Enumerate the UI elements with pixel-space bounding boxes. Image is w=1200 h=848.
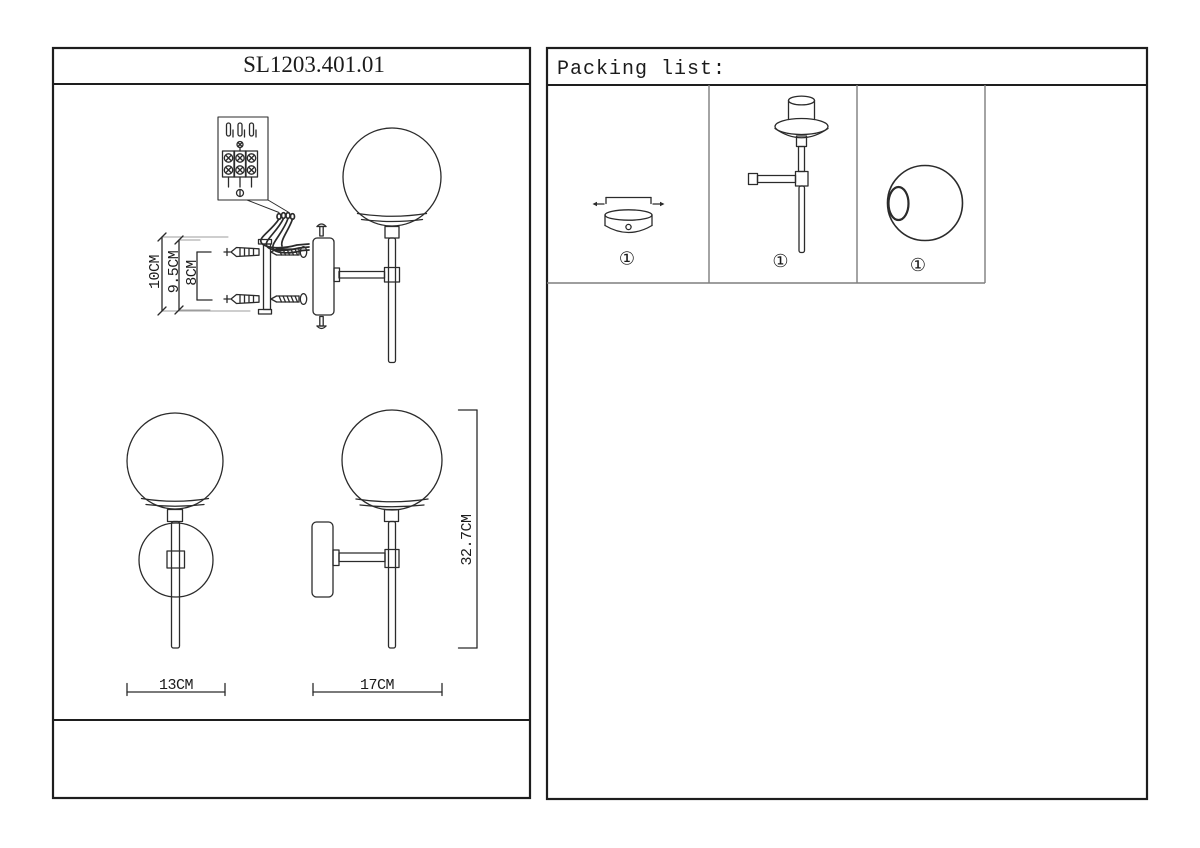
- glass-globe-drawing: [888, 166, 963, 241]
- assembled-lamp-side-top-drawing: [334, 128, 441, 363]
- dim-17cm-label: 17CM: [360, 677, 395, 694]
- dim-10cm-label: 10CM: [147, 255, 164, 290]
- packing-grid: [547, 85, 985, 283]
- right-panel-frame: [547, 48, 1147, 799]
- instruction-sheet: SL1203.401.01: [0, 0, 1200, 848]
- wall-plate-side-drawing: [313, 238, 334, 315]
- dim-13cm-label: 13CM: [159, 677, 194, 694]
- dim-8cm-label: 8CM: [184, 260, 201, 286]
- canopy-drawing: [593, 198, 665, 233]
- sheet-canvas: SL1203.401.01: [0, 0, 1200, 848]
- callout-lines: [247, 200, 289, 213]
- mounting-bracket-drawing: [259, 240, 272, 315]
- lamp-body-qty-badge: ①: [772, 251, 788, 272]
- terminal-detail-drawing: [218, 117, 268, 200]
- canopy-qty-badge: ①: [619, 249, 635, 270]
- model-number-title: SL1203.401.01: [243, 52, 385, 77]
- left-panel-frame: [53, 48, 530, 798]
- lamp-body-drawing: [749, 96, 829, 252]
- lamp-side-view-drawing: [312, 410, 442, 648]
- lamp-front-view-drawing: [127, 413, 223, 648]
- mounting-screws-drawing: [271, 247, 307, 305]
- set-screws-drawing: [317, 224, 326, 329]
- wall-anchors-drawing: [224, 248, 259, 304]
- dim-9-5cm-label: 9.5CM: [166, 250, 183, 293]
- glass-globe-qty-badge: ①: [910, 255, 926, 276]
- dim-32-7cm-label: 32.7CM: [459, 514, 476, 566]
- packing-list-title: Packing list:: [557, 58, 726, 81]
